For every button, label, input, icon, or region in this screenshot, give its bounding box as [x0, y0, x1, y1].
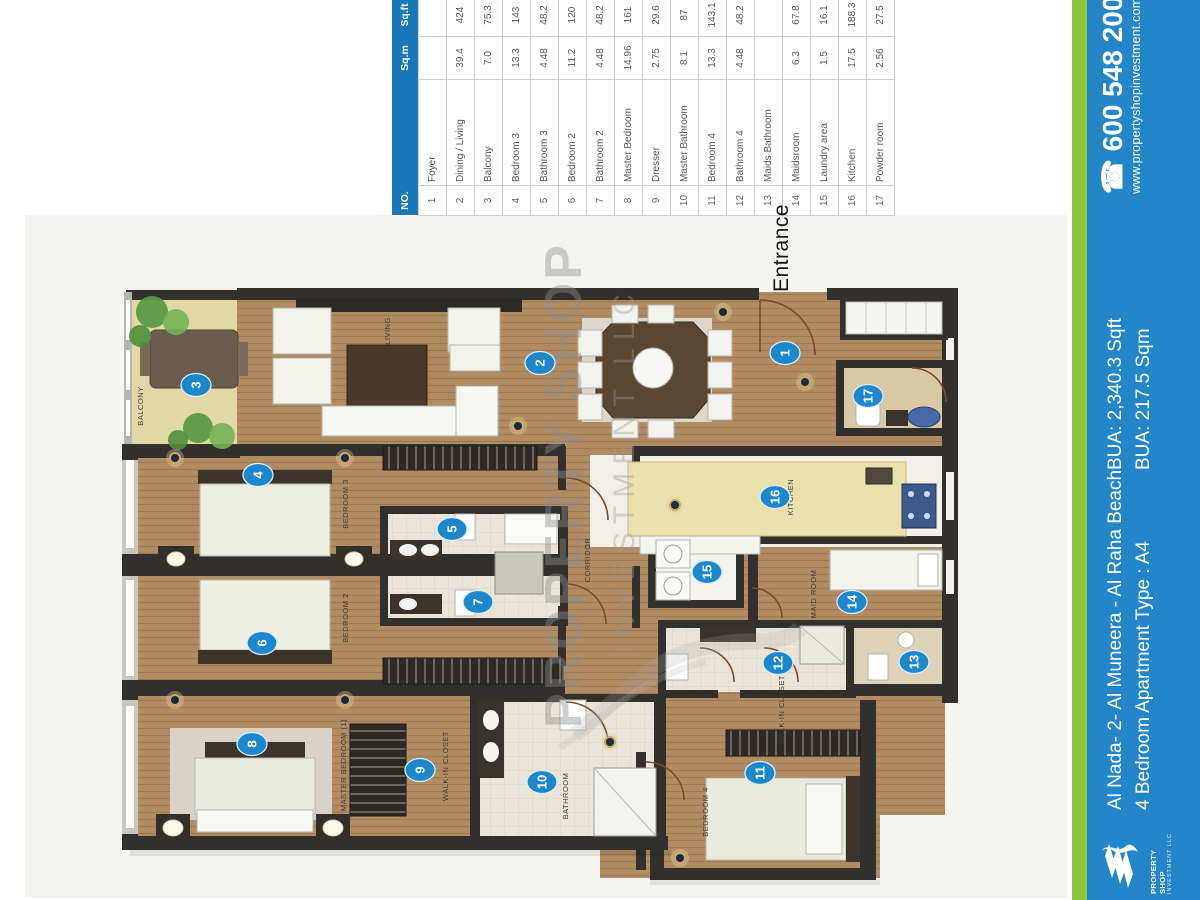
room-marker-10: 10: [527, 771, 557, 794]
cell-name: Dining / Living: [447, 80, 475, 186]
cell-no: 1: [419, 186, 447, 216]
cell-no: 9: [643, 186, 671, 216]
room-label: WALK-IN CLOSET: [777, 675, 786, 745]
room-marker-17: 17: [853, 385, 883, 408]
svg-text:4: 4: [251, 471, 266, 479]
phone-number: ☎ 600 548 200: [1097, 19, 1129, 194]
cell-sqft: 75.3: [475, 0, 503, 37]
room-label: MAID ROOM: [809, 570, 818, 619]
cell-sqm: [419, 37, 447, 80]
room-marker-1: 1: [770, 342, 800, 365]
cell-no: 17: [867, 186, 895, 216]
cell-name: Kitchen: [839, 80, 867, 186]
table-row: 11Bedroom 413.3143.1: [699, 0, 727, 216]
cell-sqm: 2.56: [867, 37, 895, 80]
cell-sqft: 143: [503, 0, 531, 37]
room-marker-12: 12: [763, 652, 793, 675]
room-marker-5: 5: [437, 518, 467, 541]
property-shop-logo-icon: [1098, 836, 1142, 894]
project-name: Al Nada- 2- Al Muneera - Al Raha Beach: [1102, 490, 1130, 810]
room-label: LIVING: [383, 317, 392, 345]
col-no: NO.: [392, 186, 419, 216]
cell-no: 16: [839, 186, 867, 216]
cell-sqm: 13.3: [699, 37, 727, 80]
website-url: www.propertyshopinvestment.com: [1129, 19, 1143, 194]
room-marker-9: 9: [405, 759, 435, 782]
room-label: BATHROOM: [561, 773, 570, 820]
brand-green-stripe: [1072, 0, 1087, 900]
svg-text:13: 13: [907, 655, 922, 669]
cell-name: Bedroom 2: [559, 80, 587, 186]
cell-name: Master Bathroom: [671, 80, 699, 186]
table-row: 12Bathroom 44.4848.2: [727, 0, 755, 216]
table-row: 3Balcony7.075.3: [475, 0, 503, 216]
table-row: 5Bathroom 34.4848.2: [531, 0, 559, 216]
cell-no: 7: [587, 186, 615, 216]
cell-sqft: 120: [559, 0, 587, 37]
room-marker-6: 6: [247, 632, 277, 655]
cell-no: 4: [503, 186, 531, 216]
room-label: BEDROOM 2: [341, 593, 350, 643]
cell-sqm: 4.48: [587, 37, 615, 80]
watermark-text-1: PROPERTY SHOP: [535, 242, 593, 728]
room-marker-3: 3: [181, 374, 211, 397]
cell-sqm: 4.48: [531, 37, 559, 80]
svg-text:1: 1: [778, 349, 793, 356]
svg-text:17: 17: [861, 389, 876, 403]
room-marker-4: 4: [243, 464, 273, 487]
col-sqft: Sq.ft: [392, 0, 419, 37]
flyer-page: PROPERTY SHOP INVESTMENT LLC BALCONYLIVI…: [0, 0, 1200, 900]
company-logo: PROPERTY SHOP INVESTMENT LLC: [1098, 830, 1173, 894]
cell-sqm: 1.5: [811, 37, 839, 80]
cell-sqm: 7.0: [475, 37, 503, 80]
svg-text:6: 6: [255, 639, 270, 646]
cell-sqft: 48.2: [531, 0, 559, 37]
svg-text:12: 12: [771, 656, 786, 670]
cell-name: Dresser: [643, 80, 671, 186]
room-marker-14: 14: [837, 591, 867, 614]
room-marker-15: 15: [692, 561, 722, 584]
room-label: WALK-IN CLOSET: [441, 731, 450, 801]
cell-no: 3: [475, 186, 503, 216]
cell-name: Bathroom 4: [727, 80, 755, 186]
table-row: 2Dining / Living39.4424: [447, 0, 475, 216]
room-label: BALCONY: [136, 386, 145, 425]
cell-sqm: 2.75: [643, 37, 671, 80]
cell-name: Balcony: [475, 80, 503, 186]
table-row: 7Bathroom 24.4848.2: [587, 0, 615, 216]
svg-text:8: 8: [245, 740, 260, 747]
bua-sqm: BUA: 217.5 Sqm: [1130, 315, 1158, 470]
cell-no: 15: [811, 186, 839, 216]
cell-sqft: 48.2: [727, 0, 755, 37]
phone-icon: ☎: [1097, 159, 1128, 194]
svg-text:16: 16: [768, 490, 783, 504]
cell-sqft: 16.1: [811, 0, 839, 37]
room-area-table: NO.Sq.mSq.ft1Foyer2Dining / Living39.442…: [392, 0, 895, 216]
cell-sqft: [419, 0, 447, 37]
cell-sqft: 143.1: [699, 0, 727, 37]
table-row: 9Dresser2.7529.6: [643, 0, 671, 216]
cell-sqft: 161: [615, 0, 643, 37]
svg-text:15: 15: [700, 565, 715, 579]
room-label: CORRIDOR: [583, 538, 592, 583]
table-row: 1Foyer: [419, 0, 447, 216]
cell-name: Foyer: [419, 80, 447, 186]
svg-text:9: 9: [413, 766, 428, 773]
logo-text-line1: PROPERTY SHOP: [1149, 830, 1167, 894]
room-label: BEDROOM 4: [701, 787, 710, 837]
entrance-label: Entrance: [770, 218, 794, 292]
cell-sqm: 39.4: [447, 37, 475, 80]
svg-text:3: 3: [189, 381, 204, 388]
svg-text:7: 7: [471, 598, 486, 605]
cell-name: Bedroom 3: [503, 80, 531, 186]
table-row: 8Master Bedroom14.96161: [615, 0, 643, 216]
cell-no: 10: [671, 186, 699, 216]
cell-name: Bathroom 2: [587, 80, 615, 186]
cell-sqm: 13.3: [503, 37, 531, 80]
watermark-text-2: INVESTMENT LLC: [608, 286, 641, 654]
logo-text-line2: INVESTMENT LLC: [1167, 830, 1173, 894]
cell-no: 12: [727, 186, 755, 216]
bua-sqft: BUA: 2,340.3 Sqft: [1102, 315, 1130, 470]
table-row: 17Powder room2.5627.5: [867, 0, 895, 216]
cell-name: Laundry area: [811, 80, 839, 186]
contact-block: ☎ 600 548 200 www.propertyshopinvestment…: [1097, 19, 1143, 194]
table-header-row: NO.Sq.mSq.ft: [392, 0, 419, 216]
cell-sqm: 11.2: [559, 37, 587, 80]
cell-sqft: [755, 0, 783, 37]
table-row: 4Bedroom 313.3143: [503, 0, 531, 216]
apartment-type: 4 Bedroom Apartment Type : A4: [1130, 490, 1158, 810]
room-marker-16: 16: [760, 486, 790, 509]
cell-sqm: 14.96: [615, 37, 643, 80]
cell-sqm: 6.3: [783, 37, 811, 80]
table-row: 10Master Bathroom8.187: [671, 0, 699, 216]
cell-sqm: [755, 37, 783, 80]
table-row: 6Bedroom 211.2120: [559, 0, 587, 216]
col-name: [392, 80, 419, 186]
svg-text:5: 5: [445, 525, 460, 532]
cell-sqm: 8.1: [671, 37, 699, 80]
room-marker-13: 13: [899, 651, 929, 674]
room-marker-8: 8: [237, 733, 267, 756]
room-label: BEDROOM 3: [341, 479, 350, 529]
table-row: 13Maids Bathroom: [755, 0, 783, 216]
svg-text:14: 14: [845, 594, 860, 609]
cell-sqm: 4.48: [727, 37, 755, 80]
cell-sqft: 67.8: [783, 0, 811, 37]
room-marker-2: 2: [525, 352, 555, 375]
cell-sqft: 188.3: [839, 0, 867, 37]
cell-name: Bathroom 3: [531, 80, 559, 186]
cell-name: Maidsroom: [783, 80, 811, 186]
cell-no: 2: [447, 186, 475, 216]
cell-sqft: 48.2: [587, 0, 615, 37]
cell-name: Bedroom 4: [699, 80, 727, 186]
svg-text:10: 10: [535, 775, 550, 789]
room-area-table-wrap: NO.Sq.mSq.ft1Foyer2Dining / Living39.442…: [392, 10, 895, 216]
cell-sqft: 29.6: [643, 0, 671, 37]
project-block: Al Nada- 2- Al Muneera - Al Raha Beach 4…: [1102, 490, 1157, 810]
svg-text:11: 11: [753, 766, 768, 780]
cell-no: 11: [699, 186, 727, 216]
table-row: 14Maidsroom6.367.8: [783, 0, 811, 216]
svg-text:2: 2: [533, 359, 548, 366]
table-row: 16Kitchen17.5188.3: [839, 0, 867, 216]
bua-block: BUA: 2,340.3 Sqft BUA: 217.5 Sqm: [1102, 315, 1157, 470]
cell-sqm: 17.5: [839, 37, 867, 80]
cell-no: 6: [559, 186, 587, 216]
cell-no: 5: [531, 186, 559, 216]
cell-sqft: 424: [447, 0, 475, 37]
cell-name: Powder room: [867, 80, 895, 186]
cell-name: Maids Bathroom: [755, 80, 783, 186]
cell-no: 8: [615, 186, 643, 216]
cell-sqft: 87: [671, 0, 699, 37]
room-label: MASTER BEDROOM (1): [339, 719, 348, 811]
table-row: 15Laundry area1.516.1: [811, 0, 839, 216]
room-marker-7: 7: [463, 591, 493, 614]
cell-name: Master Bedroom: [615, 80, 643, 186]
col-sqm: Sq.m: [392, 37, 419, 80]
room-marker-11: 11: [745, 762, 775, 785]
cell-sqft: 27.5: [867, 0, 895, 37]
